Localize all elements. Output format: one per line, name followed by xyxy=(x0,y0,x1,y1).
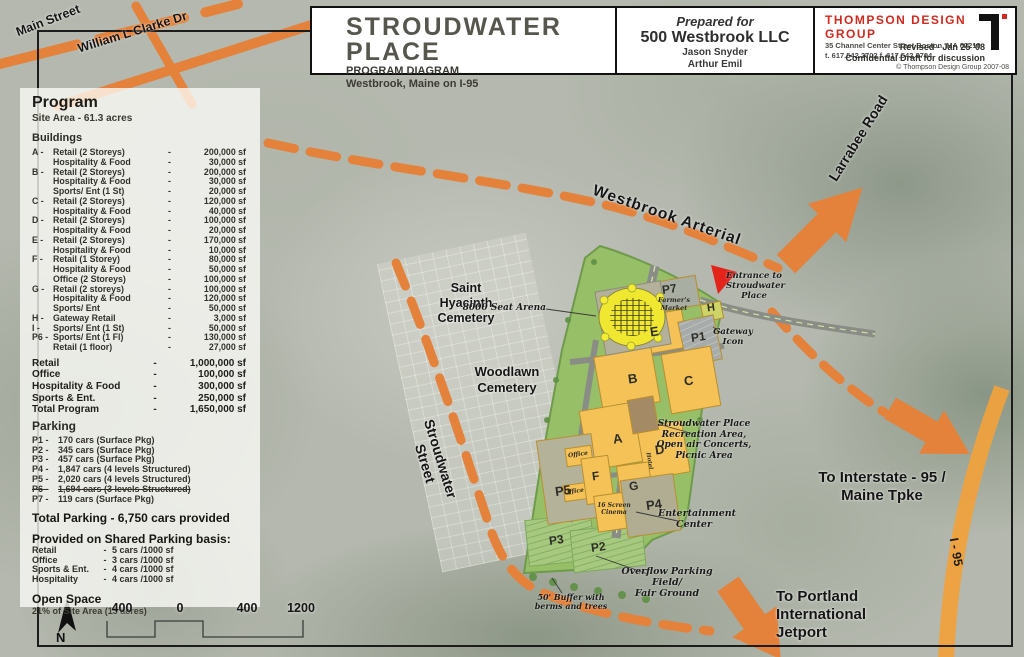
row-key: E - xyxy=(32,236,53,246)
sheet-location: Westbrook, Maine on I-95 xyxy=(346,78,615,91)
plan-label-p1: P1 xyxy=(690,329,706,345)
plan-label-cinema: 16 Screen Cinema xyxy=(596,502,632,516)
title-cell: STROUDWATER PLACE PROGRAM DIAGRAM Westbr… xyxy=(312,8,617,73)
total-name: Office xyxy=(32,369,150,381)
logo-red-square xyxy=(1002,14,1007,19)
row-name: Retail (1 floor) xyxy=(53,343,165,353)
sheet-title: STROUDWATER PLACE xyxy=(346,15,615,65)
total-name: Total Program xyxy=(32,404,150,416)
open-space-heading: Open Space xyxy=(32,592,250,606)
scale-number-3: 400 xyxy=(229,601,265,615)
scale-number-4: 1200 xyxy=(283,601,319,615)
plan-label-farmers-market: Farmer's Market xyxy=(653,296,695,312)
plan-label-g: G xyxy=(628,478,639,493)
shared-name: Hospitality xyxy=(32,575,98,585)
row-key: C - xyxy=(32,197,53,207)
building-row: Retail (1 floor)-27,000 sf xyxy=(32,343,250,353)
plan-label-p2: P2 xyxy=(590,539,606,555)
callout-gateway-icon: Gateway Icon xyxy=(710,327,756,347)
plan-label-h: H xyxy=(706,302,716,315)
total-name: Sports & Ent. xyxy=(32,393,150,405)
program-totals: Retail-1,000,000 sf Office-100,000 sf Ho… xyxy=(32,358,250,416)
plan-label-c: C xyxy=(683,372,694,388)
client-cell: Prepared for 500 Westbrook LLC Jason Sny… xyxy=(617,8,815,73)
westbrook-arterial-road xyxy=(268,143,778,268)
total-value: 1,000,000 sf xyxy=(160,358,250,370)
client-name: 500 Westbrook LLC xyxy=(617,29,813,47)
total-value: 1,650,000 sf xyxy=(160,404,250,416)
legend-heading: Program xyxy=(32,94,250,112)
row-key: A - xyxy=(32,148,53,158)
row-dash: - xyxy=(165,343,174,353)
buildings-heading: Buildings xyxy=(32,132,250,145)
total-row: Hospitality & Food-300,000 sf xyxy=(32,381,250,393)
row-key: G - xyxy=(32,285,53,295)
total-name: Hospitality & Food xyxy=(32,381,150,393)
row-key: B - xyxy=(32,168,53,178)
parking-key: P7 - xyxy=(32,495,58,505)
shared-dash: - xyxy=(98,575,112,585)
parking-value: 119 cars (Surface Pkg) xyxy=(58,495,250,505)
callout-arena: 8000 Seat Arena xyxy=(462,303,546,314)
program-legend: Program Site Area - 61.3 acres Buildings… xyxy=(20,88,260,607)
row-key xyxy=(32,265,53,275)
total-name: Retail xyxy=(32,358,150,370)
callout-overflow: Overflow Parking Field/ Fair Ground xyxy=(612,566,722,600)
total-dash: - xyxy=(150,358,160,370)
total-dash: - xyxy=(150,393,160,405)
north-label: N xyxy=(56,630,65,645)
plan-label-d: D xyxy=(654,441,665,457)
parking-row: P7 -119 cars (Surface Pkg) xyxy=(32,495,250,505)
scale-number-2: 0 xyxy=(162,601,198,615)
larrabee-arrow xyxy=(767,169,882,284)
plan-label-b: B xyxy=(627,370,638,386)
parking-rows: P1 -170 cars (Surface Pkg) P2 -345 cars … xyxy=(32,436,250,505)
prepared-for-label: Prepared for xyxy=(617,14,813,29)
total-row: Total Program-1,650,000 sf xyxy=(32,404,250,416)
plan-label-a: A xyxy=(612,430,623,446)
revised-date: Revised - Jan 25 '08 xyxy=(845,42,985,53)
row-key: P6 - xyxy=(32,333,53,343)
arena xyxy=(595,281,671,355)
shared-rows: Retail-5 cars /1000 sf Office-3 cars /10… xyxy=(32,546,250,584)
sheet-subtitle: PROGRAM DIAGRAM xyxy=(346,65,615,78)
total-dash: - xyxy=(150,381,160,393)
direction-label-portland: To Portland International Jetport xyxy=(776,588,896,642)
total-value: 100,000 sf xyxy=(160,369,250,381)
plan-label-p7: P7 xyxy=(661,281,677,297)
shared-value: 4 cars /1000 sf xyxy=(112,575,250,585)
revision-note: Revised - Jan 25 '08 Confidential Draft … xyxy=(845,42,985,64)
total-dash: - xyxy=(150,404,160,416)
scale-number-1: 400 xyxy=(104,601,140,615)
callout-buffer: 50' Buffer with berms and trees xyxy=(532,593,610,612)
total-row: Sports & Ent.-250,000 sf xyxy=(32,393,250,405)
plan-label-p4: P4 xyxy=(645,496,663,513)
total-row: Retail-1,000,000 sf xyxy=(32,358,250,370)
place-label-woodlawn: Woodlawn Cemetery xyxy=(454,364,560,396)
row-key: F - xyxy=(32,255,53,265)
confidential-note: Confidential Draft for discussion xyxy=(845,53,985,64)
client-contact-2: Arthur Emil xyxy=(617,59,813,71)
callout-entertainment: Entertainment Center xyxy=(658,508,730,530)
open-space-value: 21% of Site Area (13 acres) xyxy=(32,606,250,616)
interstate-arrow xyxy=(878,386,983,475)
logo-bar-right xyxy=(991,14,999,50)
firm-cell: THOMPSON DESIGN GROUP 35 Channel Center … xyxy=(815,8,1015,73)
building-rows: A -Retail (2 Storeys)-200,000 sf Hospita… xyxy=(32,148,250,353)
row-value: 27,000 sf xyxy=(174,343,250,353)
title-block: STROUDWATER PLACE PROGRAM DIAGRAM Westbr… xyxy=(310,6,1017,75)
total-dash: - xyxy=(150,369,160,381)
shared-row: Hospitality-4 cars /1000 sf xyxy=(32,575,250,585)
row-key xyxy=(32,294,53,304)
site-area: Site Area - 61.3 acres xyxy=(32,112,250,125)
plan-label-e: E xyxy=(649,323,660,339)
copyright-note: © Thompson Design Group 2007-08 xyxy=(896,64,1009,71)
row-key xyxy=(32,177,53,187)
client-contact-1: Jason Snyder xyxy=(617,47,813,59)
direction-label-interstate: To Interstate - 95 / Maine Tpke xyxy=(796,469,968,505)
total-value: 300,000 sf xyxy=(160,381,250,393)
total-parking: Total Parking - 6,750 cars provided xyxy=(32,511,250,525)
row-key: D - xyxy=(32,216,53,226)
callout-recreation: Stroudwater Place Recreation Area, Open … xyxy=(656,419,752,461)
row-key xyxy=(32,343,53,353)
total-row: Office-100,000 sf xyxy=(32,369,250,381)
firm-logo-icon xyxy=(979,14,1005,50)
total-value: 250,000 sf xyxy=(160,393,250,405)
callout-entrance: Entrance to Stroudwater Place xyxy=(726,271,782,301)
program-diagram-sheet: STROUDWATER PLACE PROGRAM DIAGRAM Westbr… xyxy=(0,0,1024,657)
plan-label-p3: P3 xyxy=(548,532,564,548)
scale-bar xyxy=(107,620,303,637)
parking-heading: Parking xyxy=(32,420,250,433)
